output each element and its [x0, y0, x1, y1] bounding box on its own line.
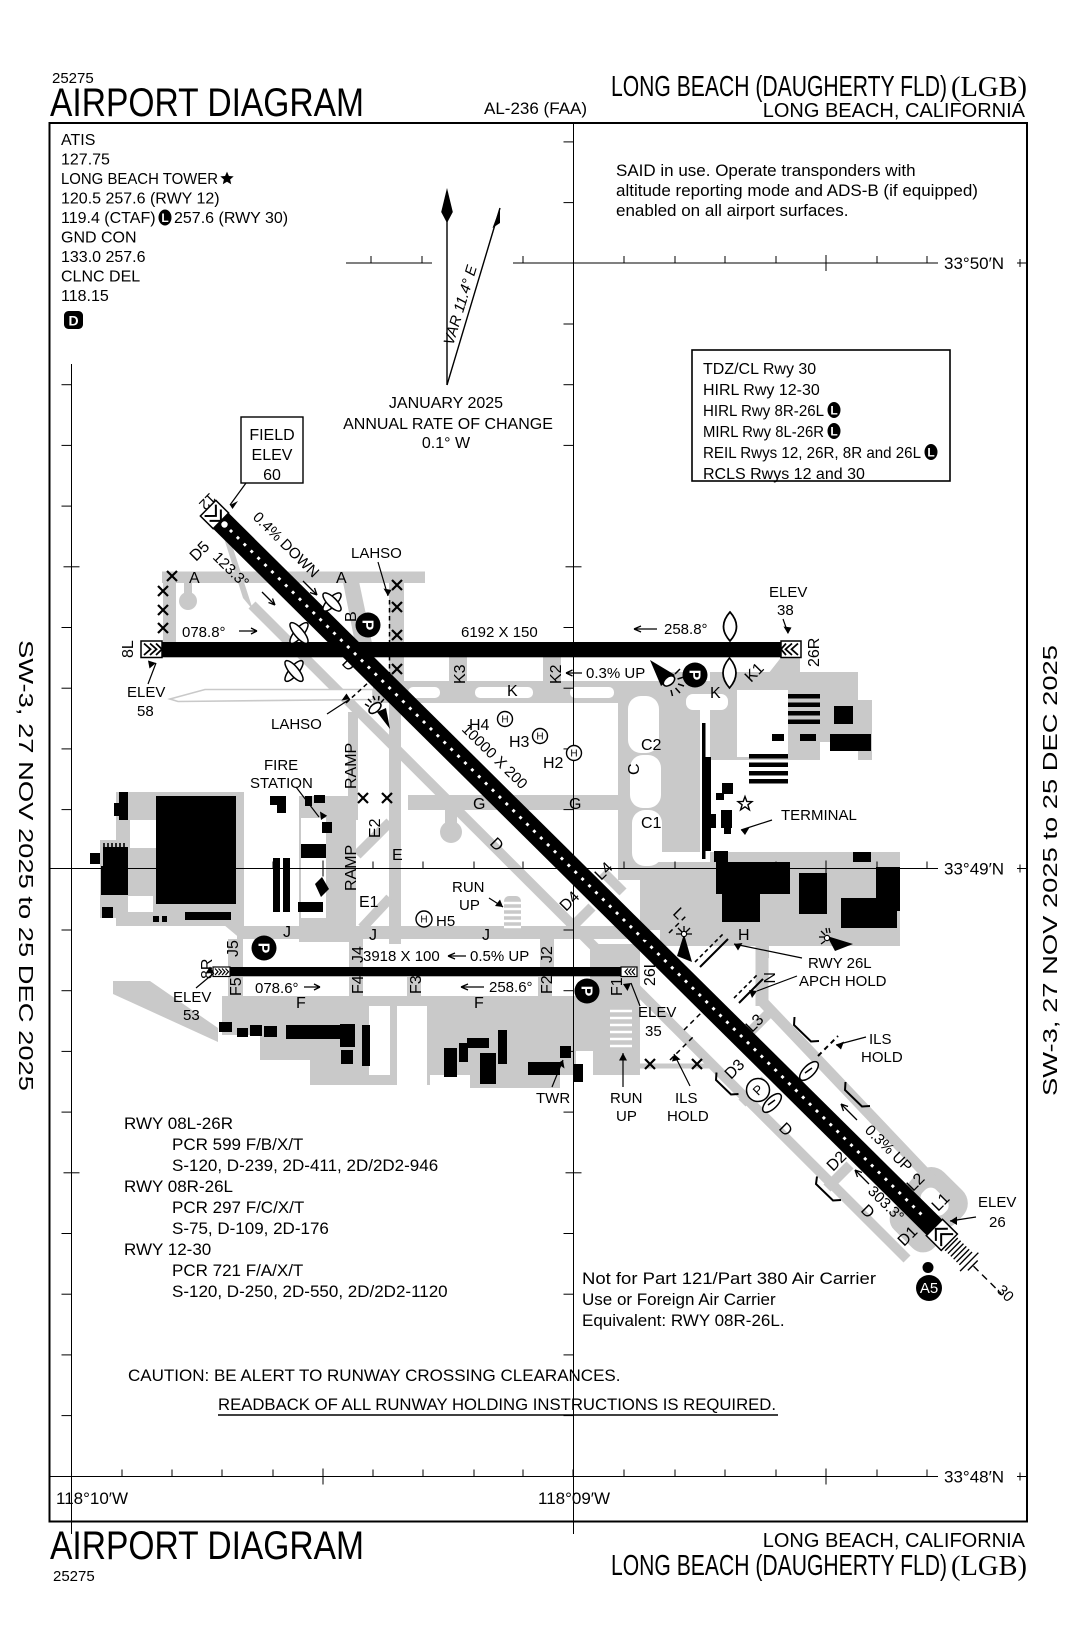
- svg-text:CAUTION: BE ALERT TO RUNWAY CR: CAUTION: BE ALERT TO RUNWAY CROSSING CLE…: [128, 1366, 621, 1385]
- svg-text:A: A: [189, 570, 200, 587]
- svg-text:LONG BEACH TOWER: LONG BEACH TOWER: [61, 171, 218, 188]
- svg-text:GND CON: GND CON: [61, 230, 137, 247]
- svg-text:C1: C1: [641, 815, 662, 832]
- svg-text:PCR 297 F/C/X/T: PCR 297 F/C/X/T: [172, 1198, 304, 1217]
- svg-text:APCH HOLD: APCH HOLD: [799, 973, 887, 990]
- svg-text:RAMP: RAMP: [343, 845, 360, 891]
- svg-text:K2: K2: [548, 664, 565, 684]
- svg-text:G: G: [473, 796, 485, 813]
- svg-text:0.3% UP: 0.3% UP: [586, 665, 645, 682]
- svg-text:HOLD: HOLD: [667, 1108, 709, 1125]
- svg-text:LONG BEACH, CALIFORNIA: LONG BEACH, CALIFORNIA: [763, 1530, 1026, 1552]
- svg-text:B: B: [343, 611, 360, 622]
- svg-text:REIL Rwys 12, 26R, 8R and 26L: REIL Rwys 12, 26R, 8R and 26L: [703, 445, 921, 462]
- svg-text:119.4 (CTAF): 119.4 (CTAF): [61, 210, 156, 227]
- svg-text:ELEV: ELEV: [173, 989, 211, 1006]
- svg-text:PCR 599 F/B/X/T: PCR 599 F/B/X/T: [172, 1135, 303, 1154]
- svg-text:J: J: [283, 924, 291, 941]
- svg-text:LONG BEACH, CALIFORNIA: LONG BEACH, CALIFORNIA: [763, 100, 1026, 122]
- svg-text:60: 60: [263, 467, 281, 484]
- svg-text:SAID in use. Operate transpond: SAID in use. Operate transponders with: [616, 161, 916, 180]
- svg-text:H2: H2: [543, 755, 564, 772]
- svg-text:AIRPORT DIAGRAM: AIRPORT DIAGRAM: [50, 1524, 364, 1568]
- svg-text:A: A: [336, 570, 347, 587]
- svg-text:ANNUAL RATE OF CHANGE: ANNUAL RATE OF CHANGE: [343, 416, 553, 433]
- svg-text:120.5 257.6 (RWY 12): 120.5 257.6 (RWY 12): [61, 191, 220, 208]
- svg-text:K: K: [710, 685, 721, 702]
- svg-text:FIRE: FIRE: [264, 757, 298, 774]
- svg-text:K3: K3: [452, 664, 469, 684]
- svg-text:F5: F5: [228, 977, 245, 996]
- svg-text:AIRPORT DIAGRAM: AIRPORT DIAGRAM: [50, 81, 364, 125]
- svg-text:HOLD: HOLD: [861, 1049, 903, 1066]
- svg-text:Equivalent: RWY 08R-26L.: Equivalent: RWY 08R-26L.: [582, 1311, 785, 1330]
- svg-text:L: L: [830, 425, 837, 439]
- svg-text:RUN: RUN: [452, 879, 485, 896]
- svg-text:enabled on all airport surface: enabled on all airport surfaces.: [616, 201, 848, 220]
- svg-text:H: H: [570, 749, 577, 760]
- svg-text:8R: 8R: [199, 959, 216, 979]
- svg-text:LAHSO: LAHSO: [271, 716, 322, 733]
- svg-text:P: P: [255, 943, 272, 954]
- svg-text:H: H: [501, 715, 508, 726]
- svg-text:H5: H5: [436, 913, 455, 930]
- svg-text:J: J: [482, 927, 490, 944]
- svg-text:33°49′N: 33°49′N: [944, 860, 1004, 879]
- svg-text:RUN: RUN: [610, 1090, 643, 1107]
- svg-text:ELEV: ELEV: [252, 447, 293, 464]
- svg-text:RAMP: RAMP: [343, 743, 360, 789]
- svg-text:JANUARY 2025: JANUARY 2025: [389, 395, 503, 412]
- svg-text:E2: E2: [367, 818, 384, 838]
- svg-text:D: D: [68, 313, 78, 329]
- svg-text:TDZ/CL Rwy 30: TDZ/CL Rwy 30: [703, 361, 816, 378]
- svg-text:READBACK OF ALL RUNWAY HOLDING: READBACK OF ALL RUNWAY HOLDING INSTRUCTI…: [218, 1395, 776, 1414]
- svg-text:0.5% UP: 0.5% UP: [470, 948, 529, 965]
- svg-text:F3: F3: [408, 975, 425, 994]
- svg-text:F4: F4: [350, 975, 367, 994]
- svg-text:258.6°: 258.6°: [489, 979, 533, 996]
- svg-text:F: F: [296, 995, 306, 1012]
- svg-text:LONG BEACH (DAUGHERTY FLD): LONG BEACH (DAUGHERTY FLD): [611, 1550, 947, 1582]
- svg-text:53: 53: [183, 1007, 200, 1024]
- svg-text:PCR 721 F/A/X/T: PCR 721 F/A/X/T: [172, 1261, 303, 1280]
- svg-text:P: P: [578, 986, 595, 997]
- svg-text:SW-3, 27 NOV 2025 to 25 DEC: SW-3, 27 NOV 2025 to 25 DEC 2025: [14, 640, 36, 1091]
- svg-text:L: L: [161, 211, 168, 225]
- svg-text:C2: C2: [641, 737, 662, 754]
- svg-text:RWY 08L-26R: RWY 08L-26R: [124, 1114, 233, 1133]
- svg-text:H: H: [420, 915, 427, 926]
- svg-text:J5: J5: [225, 940, 242, 957]
- svg-text:A5: A5: [920, 1280, 938, 1297]
- svg-text:ELEV: ELEV: [638, 1004, 676, 1021]
- svg-text:UP: UP: [616, 1108, 637, 1125]
- svg-text:RWY 26L: RWY 26L: [808, 955, 872, 972]
- svg-text:Use or Foreign Air Carrier: Use or Foreign Air Carrier: [582, 1290, 776, 1309]
- svg-text:P: P: [359, 620, 376, 631]
- svg-text:Not for Part 121/Part 380 Air: Not for Part 121/Part 380 Air Carrier: [582, 1269, 876, 1288]
- svg-text:118°09′W: 118°09′W: [538, 1489, 610, 1508]
- svg-text:MIRL Rwy 8L-26R: MIRL Rwy 8L-26R: [703, 424, 824, 441]
- svg-text:P: P: [686, 670, 703, 681]
- svg-text:LAHSO: LAHSO: [351, 545, 402, 562]
- svg-text:F1: F1: [609, 977, 626, 996]
- svg-text:S-120, D-239, 2D-411, 2D/2D2-9: S-120, D-239, 2D-411, 2D/2D2-946: [172, 1156, 438, 1175]
- svg-text:26R: 26R: [806, 638, 823, 667]
- svg-text:K: K: [507, 683, 518, 700]
- svg-text:ELEV: ELEV: [127, 684, 165, 701]
- svg-text:HIRL Rwy 12-30: HIRL Rwy 12-30: [703, 382, 820, 399]
- svg-text:258.8°: 258.8°: [664, 621, 708, 638]
- svg-text:FIELD: FIELD: [249, 427, 294, 444]
- svg-text:8L: 8L: [120, 640, 137, 658]
- svg-text:(LGB): (LGB): [951, 1550, 1027, 1582]
- svg-text:RCLS Rwys 12 and 30: RCLS Rwys 12 and 30: [703, 466, 865, 483]
- svg-text:TERMINAL: TERMINAL: [781, 807, 857, 824]
- svg-text:35: 35: [645, 1023, 662, 1040]
- svg-text:ELEV: ELEV: [978, 1194, 1016, 1211]
- svg-text:0.1° W: 0.1° W: [422, 435, 471, 452]
- svg-text:E: E: [392, 847, 403, 864]
- svg-text:ILS: ILS: [675, 1090, 698, 1107]
- svg-text:F: F: [474, 995, 484, 1012]
- svg-text:25275: 25275: [53, 1568, 95, 1585]
- svg-text:RWY 08R-26L: RWY 08R-26L: [124, 1177, 233, 1196]
- svg-text:078.6°: 078.6°: [255, 980, 299, 997]
- svg-text:C: C: [626, 763, 643, 775]
- svg-text:S-120, D-250, 2D-550, 2D/2D2-1: S-120, D-250, 2D-550, 2D/2D2-1120: [172, 1282, 448, 1301]
- svg-text:UP: UP: [459, 897, 480, 914]
- svg-text:L: L: [830, 404, 837, 418]
- svg-text:ATIS: ATIS: [61, 132, 95, 149]
- svg-text:133.0 257.6: 133.0 257.6: [61, 249, 146, 266]
- svg-text:AL-236 (FAA): AL-236 (FAA): [484, 99, 587, 118]
- svg-text:(LGB): (LGB): [951, 71, 1027, 103]
- svg-text:SW-3, 27 NOV 2025 to 25 DEC: SW-3, 27 NOV 2025 to 25 DEC 2025: [1040, 645, 1062, 1096]
- svg-text:118.15: 118.15: [61, 288, 109, 305]
- svg-text:N: N: [760, 972, 777, 984]
- svg-text:ELEV: ELEV: [769, 584, 807, 601]
- svg-text:J4: J4: [350, 946, 367, 963]
- svg-text:6192 X 150: 6192 X 150: [461, 624, 538, 641]
- svg-text:G: G: [569, 796, 581, 813]
- svg-text:TWR: TWR: [536, 1090, 570, 1107]
- svg-text:127.75: 127.75: [61, 152, 110, 169]
- svg-text:F2: F2: [539, 975, 556, 994]
- svg-text:3918 X 100: 3918 X 100: [363, 948, 440, 965]
- svg-text:L: L: [927, 446, 934, 460]
- svg-text:H3: H3: [509, 734, 530, 751]
- svg-text:S-75, D-109, 2D-176: S-75, D-109, 2D-176: [172, 1219, 329, 1238]
- svg-text:LONG BEACH (DAUGHERTY FLD): LONG BEACH (DAUGHERTY FLD): [611, 71, 947, 103]
- svg-text:38: 38: [777, 602, 794, 619]
- svg-text:J2: J2: [539, 946, 556, 963]
- svg-text:33°50′N: 33°50′N: [944, 254, 1004, 273]
- svg-text:26L: 26L: [642, 959, 659, 986]
- svg-text:078.8°: 078.8°: [182, 624, 226, 641]
- svg-text:33°48′N: 33°48′N: [944, 1468, 1004, 1487]
- svg-text:J: J: [642, 927, 650, 944]
- svg-text:58: 58: [137, 703, 154, 720]
- svg-text:H: H: [738, 927, 750, 944]
- svg-text:E1: E1: [359, 894, 379, 911]
- svg-text:HIRL Rwy 8R-26L: HIRL Rwy 8R-26L: [703, 403, 824, 420]
- svg-text:118°10′W: 118°10′W: [56, 1489, 128, 1508]
- svg-text:257.6 (RWY 30): 257.6 (RWY 30): [174, 210, 288, 227]
- svg-text:STATION: STATION: [250, 775, 313, 792]
- svg-text:altitude reporting mode and AD: altitude reporting mode and ADS-B (if eq…: [616, 181, 978, 200]
- svg-text:J: J: [369, 927, 377, 944]
- svg-text:CLNC DEL: CLNC DEL: [61, 269, 140, 286]
- svg-text:26: 26: [989, 1214, 1006, 1231]
- svg-text:RWY 12-30: RWY 12-30: [124, 1240, 211, 1259]
- svg-text:H: H: [536, 732, 543, 743]
- svg-text:ILS: ILS: [869, 1031, 892, 1048]
